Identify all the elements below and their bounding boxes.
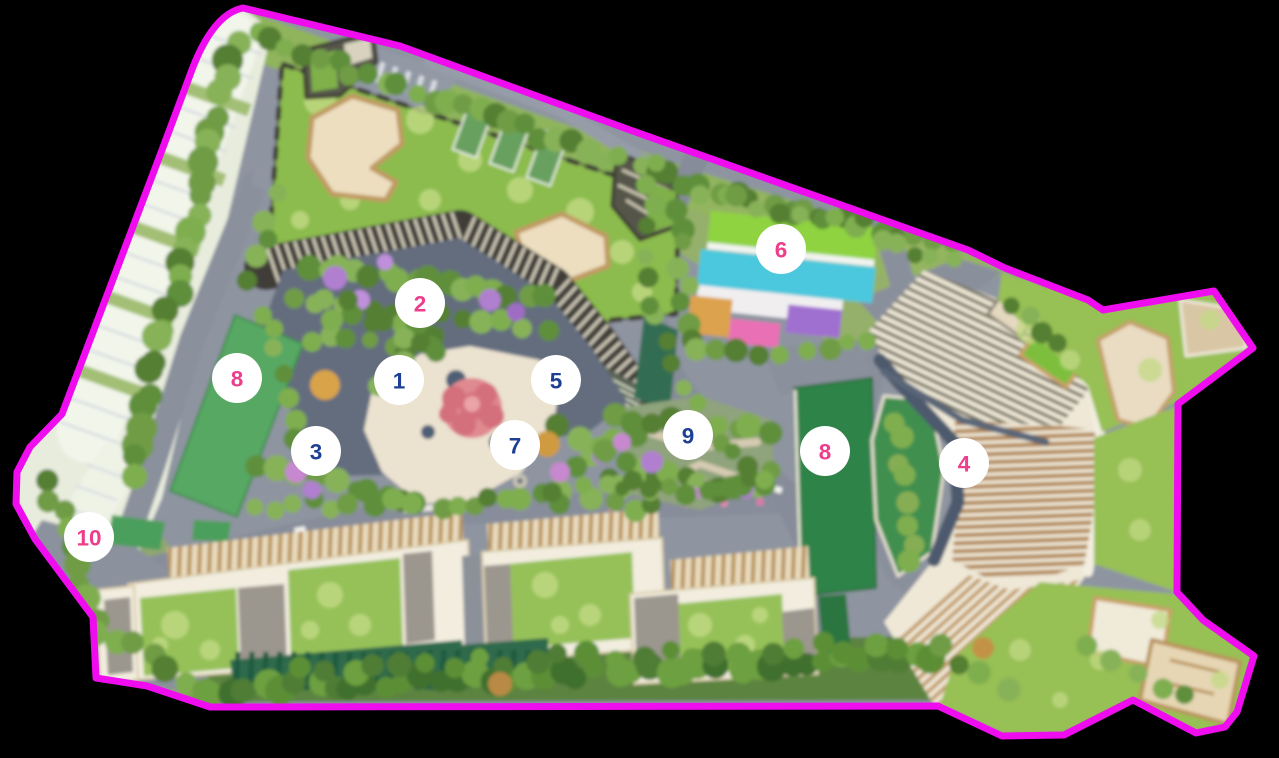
svg-text:6: 6 [775, 238, 788, 263]
svg-text:9: 9 [682, 424, 695, 449]
svg-text:10: 10 [76, 526, 101, 551]
svg-text:8: 8 [819, 440, 832, 465]
svg-text:5: 5 [550, 369, 563, 394]
svg-text:4: 4 [958, 452, 971, 477]
svg-text:1: 1 [393, 369, 406, 394]
svg-text:8: 8 [231, 367, 244, 392]
svg-text:2: 2 [414, 292, 427, 317]
svg-text:7: 7 [509, 434, 522, 459]
svg-text:3: 3 [310, 440, 323, 465]
